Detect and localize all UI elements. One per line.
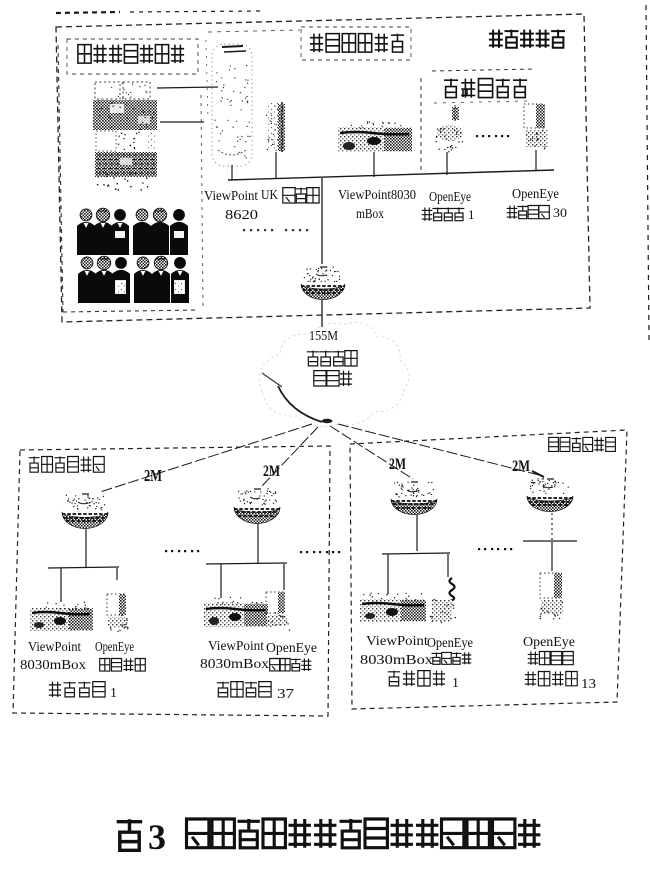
svg-text:ViewPoint: ViewPoint xyxy=(204,189,258,204)
svg-text:OpenEye: OpenEye xyxy=(512,186,559,201)
svg-text:8030mBox: 8030mBox xyxy=(360,652,433,667)
svg-text:30: 30 xyxy=(553,205,567,220)
svg-text:UK: UK xyxy=(261,188,278,203)
svg-text:1: 1 xyxy=(110,686,117,701)
svg-text:mBox: mBox xyxy=(356,206,384,221)
svg-text:8030mBox: 8030mBox xyxy=(200,656,269,671)
svg-text:ViewPoint: ViewPoint xyxy=(366,633,428,648)
svg-text:1: 1 xyxy=(452,676,459,691)
svg-text:2M: 2M xyxy=(389,456,406,473)
svg-text:OpenEye: OpenEye xyxy=(523,634,575,649)
svg-text:2M: 2M xyxy=(263,463,280,480)
svg-text:OpenEye: OpenEye xyxy=(429,189,471,204)
svg-text:8620: 8620 xyxy=(225,208,258,223)
svg-text:ViewPoint8030: ViewPoint8030 xyxy=(338,187,416,202)
svg-text:3: 3 xyxy=(148,817,166,857)
svg-text:2M: 2M xyxy=(512,458,530,475)
svg-text:ViewPoint: ViewPoint xyxy=(28,639,81,654)
svg-text:2M: 2M xyxy=(144,466,162,485)
svg-text:OpenEye: OpenEye xyxy=(427,635,473,650)
svg-text:155M: 155M xyxy=(309,329,338,344)
svg-text:37: 37 xyxy=(277,687,294,702)
svg-text:ViewPoint: ViewPoint xyxy=(208,638,264,653)
svg-text:8030mBox: 8030mBox xyxy=(20,657,86,672)
svg-text:1: 1 xyxy=(468,207,475,222)
svg-text:OpenEye: OpenEye xyxy=(266,640,317,655)
svg-text:OpenEye: OpenEye xyxy=(95,639,134,654)
svg-text:13: 13 xyxy=(581,676,596,691)
